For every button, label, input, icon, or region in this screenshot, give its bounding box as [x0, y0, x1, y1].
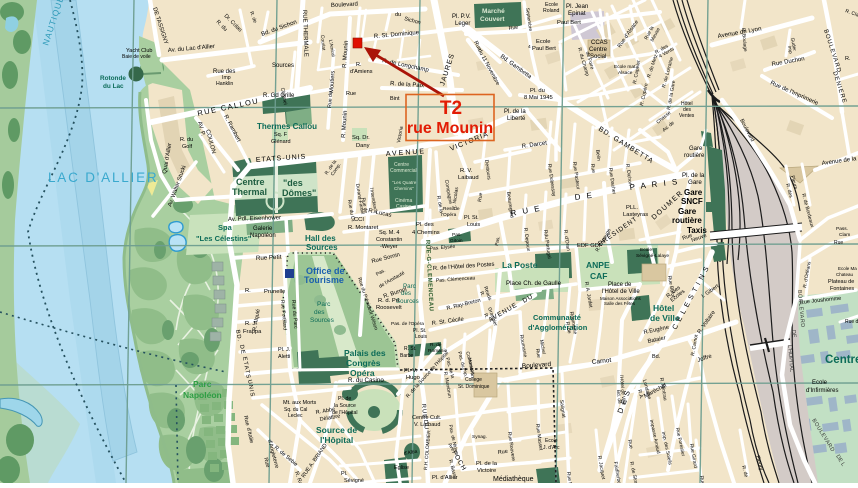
svg-text:Ecole: Ecole: [812, 380, 828, 386]
svg-text:CCAS: CCAS: [591, 40, 608, 46]
svg-text:Chemins": Chemins": [394, 186, 414, 191]
svg-text:Rotonde: Rotonde: [100, 75, 126, 82]
svg-text:Centre Cult.: Centre Cult.: [412, 415, 442, 421]
svg-text:Pl. de la: Pl. de la: [682, 172, 705, 179]
svg-text:Rue: Rue: [834, 240, 843, 246]
svg-text:Hôtel: Hôtel: [653, 303, 674, 313]
svg-text:Tourisme: Tourisme: [304, 275, 344, 285]
svg-text:T2: T2: [440, 98, 462, 119]
svg-text:V. Larbaud: V. Larbaud: [414, 422, 440, 428]
svg-text:Place Ch. de Gaulle: Place Ch. de Gaulle: [506, 280, 562, 287]
svg-text:Parc: Parc: [317, 301, 331, 308]
svg-text:Leger: Leger: [455, 21, 470, 27]
svg-text:R.: R.: [245, 288, 251, 294]
svg-text:Ecole: Ecole: [545, 438, 558, 444]
svg-text:Rue de: Rue de: [845, 319, 858, 325]
svg-text:La Poste: La Poste: [502, 260, 538, 270]
svg-text:PLL.: PLL.: [626, 205, 638, 211]
svg-text:Source de: Source de: [316, 425, 357, 435]
svg-text:Ecole mat.: Ecole mat.: [614, 64, 637, 70]
svg-text:l'Opéra: l'Opéra: [441, 212, 457, 218]
svg-text:Gare: Gare: [689, 146, 703, 152]
svg-text:Paul Bert: Paul Bert: [532, 46, 556, 52]
svg-text:-Weyer: -Weyer: [380, 244, 398, 250]
svg-text:Rue: Rue: [346, 91, 356, 97]
svg-text:R. de: R. de: [430, 342, 442, 348]
svg-text:Laibaud: Laibaud: [458, 175, 479, 181]
svg-text:Dômes": Dômes": [282, 188, 316, 198]
svg-text:Fontaines: Fontaines: [830, 286, 854, 292]
svg-text:Clam: Clam: [839, 232, 850, 238]
svg-text:R. St.: R. St.: [404, 346, 417, 352]
svg-text:Pl. P.V.: Pl. P.V.: [452, 14, 471, 20]
svg-text:Louis: Louis: [415, 334, 427, 340]
svg-text:Chateau: Chateau: [836, 272, 854, 277]
svg-text:Pass.: Pass.: [836, 226, 848, 232]
svg-text:R. du: R. du: [180, 137, 193, 143]
svg-text:Epinat: Epinat: [568, 10, 586, 17]
svg-text:Ecole Ma: Ecole Ma: [838, 266, 857, 271]
svg-text:Casino: Casino: [396, 204, 412, 210]
svg-text:Leclec: Leclec: [288, 413, 303, 419]
svg-text:Gitoin: Gitoin: [450, 238, 463, 244]
svg-text:Spa: Spa: [218, 223, 233, 232]
svg-text:Sévigné: Sévigné: [344, 478, 364, 483]
svg-text:Palais des: Palais des: [344, 348, 386, 358]
svg-text:Baie de voile: Baie de voile: [122, 54, 151, 60]
svg-text:Bd.: Bd.: [652, 354, 661, 360]
svg-text:du: du: [395, 12, 401, 18]
svg-text:R. d. Pd: R. d. Pd: [378, 298, 399, 304]
svg-text:Constantin: Constantin: [376, 237, 402, 243]
svg-text:Ventes: Ventes: [679, 113, 695, 119]
svg-text:R. du Casino: R. du Casino: [348, 377, 384, 384]
svg-text:Pas. de l'Opéra: Pas. de l'Opéra: [391, 321, 424, 327]
svg-text:Victoire: Victoire: [477, 468, 496, 474]
svg-text:d'Infirmières: d'Infirmières: [806, 388, 839, 394]
svg-text:Pl. St.: Pl. St.: [464, 215, 479, 221]
svg-text:Pl. des: Pl. des: [416, 222, 434, 228]
svg-text:d'Amiens: d'Amiens: [350, 69, 373, 75]
svg-text:DE: DE: [790, 330, 797, 338]
svg-text:"Les Célestins": "Les Célestins": [196, 234, 252, 243]
svg-text:"des: "des: [283, 178, 303, 188]
svg-text:Paul Bert: Paul Bert: [557, 20, 581, 26]
svg-text:Synag.: Synag.: [472, 434, 487, 440]
svg-text:R.: R.: [356, 62, 362, 68]
svg-text:Aletti: Aletti: [278, 354, 290, 360]
svg-text:Rue du: Rue du: [327, 91, 334, 108]
svg-text:St. Dominique: St. Dominique: [458, 384, 490, 390]
svg-text:Res. de: Res. de: [443, 206, 460, 212]
svg-text:Pas.: Pas.: [452, 232, 462, 238]
svg-text:Pl. V.: Pl. V.: [404, 368, 418, 374]
svg-text:4 Chemins: 4 Chemins: [412, 230, 440, 236]
svg-text:SNCF: SNCF: [681, 197, 703, 206]
svg-text:Eglise: Eglise: [394, 465, 409, 471]
svg-text:Pl. d'Allier: Pl. d'Allier: [432, 475, 458, 481]
svg-text:Napoléon: Napoléon: [183, 390, 222, 400]
svg-text:Rue Petit: Rue Petit: [256, 254, 282, 262]
svg-text:d'Agglomération: d'Agglomération: [528, 323, 588, 332]
svg-text:Liberté: Liberté: [507, 116, 526, 122]
svg-text:Médiathèque: Médiathèque: [493, 476, 534, 483]
svg-text:Parc: Parc: [193, 379, 212, 389]
svg-text:Romanie: Romanie: [428, 348, 448, 354]
svg-text:des: des: [314, 309, 325, 316]
svg-text:Ecole: Ecole: [640, 247, 652, 253]
svg-text:la Source: la Source: [334, 403, 356, 409]
svg-text:Roosevelt: Roosevelt: [376, 305, 402, 311]
svg-text:Barbe: Barbe: [400, 353, 414, 359]
svg-text:Commercial: Commercial: [390, 168, 417, 174]
svg-text:Gare: Gare: [678, 207, 697, 216]
svg-text:Pl. Jean: Pl. Jean: [566, 3, 589, 10]
svg-text:Congrès: Congrès: [346, 358, 381, 368]
svg-text:J. d'Arc: J. d'Arc: [543, 445, 560, 451]
svg-text:Sources: Sources: [272, 63, 294, 69]
svg-text:Roland: Roland: [543, 8, 560, 14]
svg-text:Pl. de: Pl. de: [338, 396, 351, 402]
svg-text:Bint: Bint: [390, 96, 400, 102]
svg-text:Ecole: Ecole: [536, 39, 551, 45]
svg-text:Sq. Dr.: Sq. Dr.: [352, 135, 370, 141]
svg-text:l'Hôtel de Ville: l'Hôtel de Ville: [602, 289, 640, 295]
svg-text:R.: R.: [845, 56, 851, 62]
svg-text:Pl.: Pl.: [341, 471, 348, 477]
svg-text:R. Gd Grille: R. Gd Grille: [263, 93, 295, 99]
svg-text:Napoléon: Napoléon: [250, 233, 276, 239]
svg-text:routière: routière: [684, 153, 705, 159]
svg-text:Frappa: Frappa: [243, 329, 262, 335]
svg-text:LAC D'ALLIER: LAC D'ALLIER: [48, 170, 158, 185]
svg-text:Marché: Marché: [482, 8, 505, 15]
svg-text:ANPE: ANPE: [586, 260, 610, 270]
svg-text:du Lac: du Lac: [103, 83, 124, 90]
svg-text:4: 4: [528, 44, 531, 50]
svg-text:Galerie: Galerie: [253, 226, 273, 232]
svg-text:Sq. M. 4: Sq. M. 4: [379, 230, 399, 236]
svg-text:"Les Quatre: "Les Quatre: [392, 180, 417, 185]
svg-text:Pl. de la: Pl. de la: [504, 109, 526, 115]
svg-text:Place de: Place de: [608, 282, 632, 288]
svg-text:Sévigné-Lalaye: Sévigné-Lalaye: [636, 253, 669, 259]
svg-text:Dany: Dany: [356, 143, 370, 149]
svg-text:Louis: Louis: [467, 222, 480, 228]
svg-text:Glénard: Glénard: [271, 139, 291, 145]
svg-text:Gare: Gare: [688, 179, 702, 186]
svg-text:R. Montaret: R. Montaret: [348, 225, 379, 231]
svg-text:Mt. aux Morts: Mt. aux Morts: [283, 400, 317, 406]
svg-text:R. J.: R. J.: [245, 321, 257, 327]
svg-text:Alsace: Alsace: [618, 70, 633, 76]
svg-text:Hall des: Hall des: [305, 234, 336, 243]
svg-text:Couvert: Couvert: [480, 16, 505, 23]
svg-text:Thermes Callou: Thermes Callou: [257, 122, 317, 131]
svg-text:Centre: Centre: [589, 47, 608, 53]
svg-text:Sources: Sources: [310, 317, 335, 324]
svg-text:Gare: Gare: [684, 188, 703, 197]
svg-text:Salle des Fêtes: Salle des Fêtes: [604, 301, 636, 306]
svg-text:Sources: Sources: [396, 298, 419, 305]
svg-text:Golf: Golf: [182, 144, 193, 150]
svg-text:R. V.: R. V.: [460, 168, 473, 174]
svg-text:rue Mounin: rue Mounin: [407, 120, 493, 137]
svg-text:routière: routière: [672, 216, 702, 225]
svg-text:8 Mai 1945: 8 Mai 1945: [524, 95, 553, 101]
svg-text:Thermal: Thermal: [232, 187, 267, 197]
svg-text:Hanklin: Hanklin: [216, 81, 233, 87]
svg-text:College: College: [465, 377, 482, 383]
svg-text:Sq. F: Sq. F: [274, 132, 288, 138]
svg-text:Prunelle: Prunelle: [264, 289, 285, 295]
svg-text:CAF: CAF: [590, 271, 607, 281]
svg-text:Centre: Centre: [236, 177, 265, 187]
svg-text:Plateau de: Plateau de: [828, 279, 854, 285]
svg-text:Pl. du: Pl. du: [530, 88, 545, 94]
svg-text:Pl. de la: Pl. de la: [476, 461, 498, 467]
svg-text:Centre: Centre: [825, 354, 858, 366]
svg-text:Sources: Sources: [306, 243, 338, 252]
svg-text:Pl. J.: Pl. J.: [278, 347, 291, 353]
